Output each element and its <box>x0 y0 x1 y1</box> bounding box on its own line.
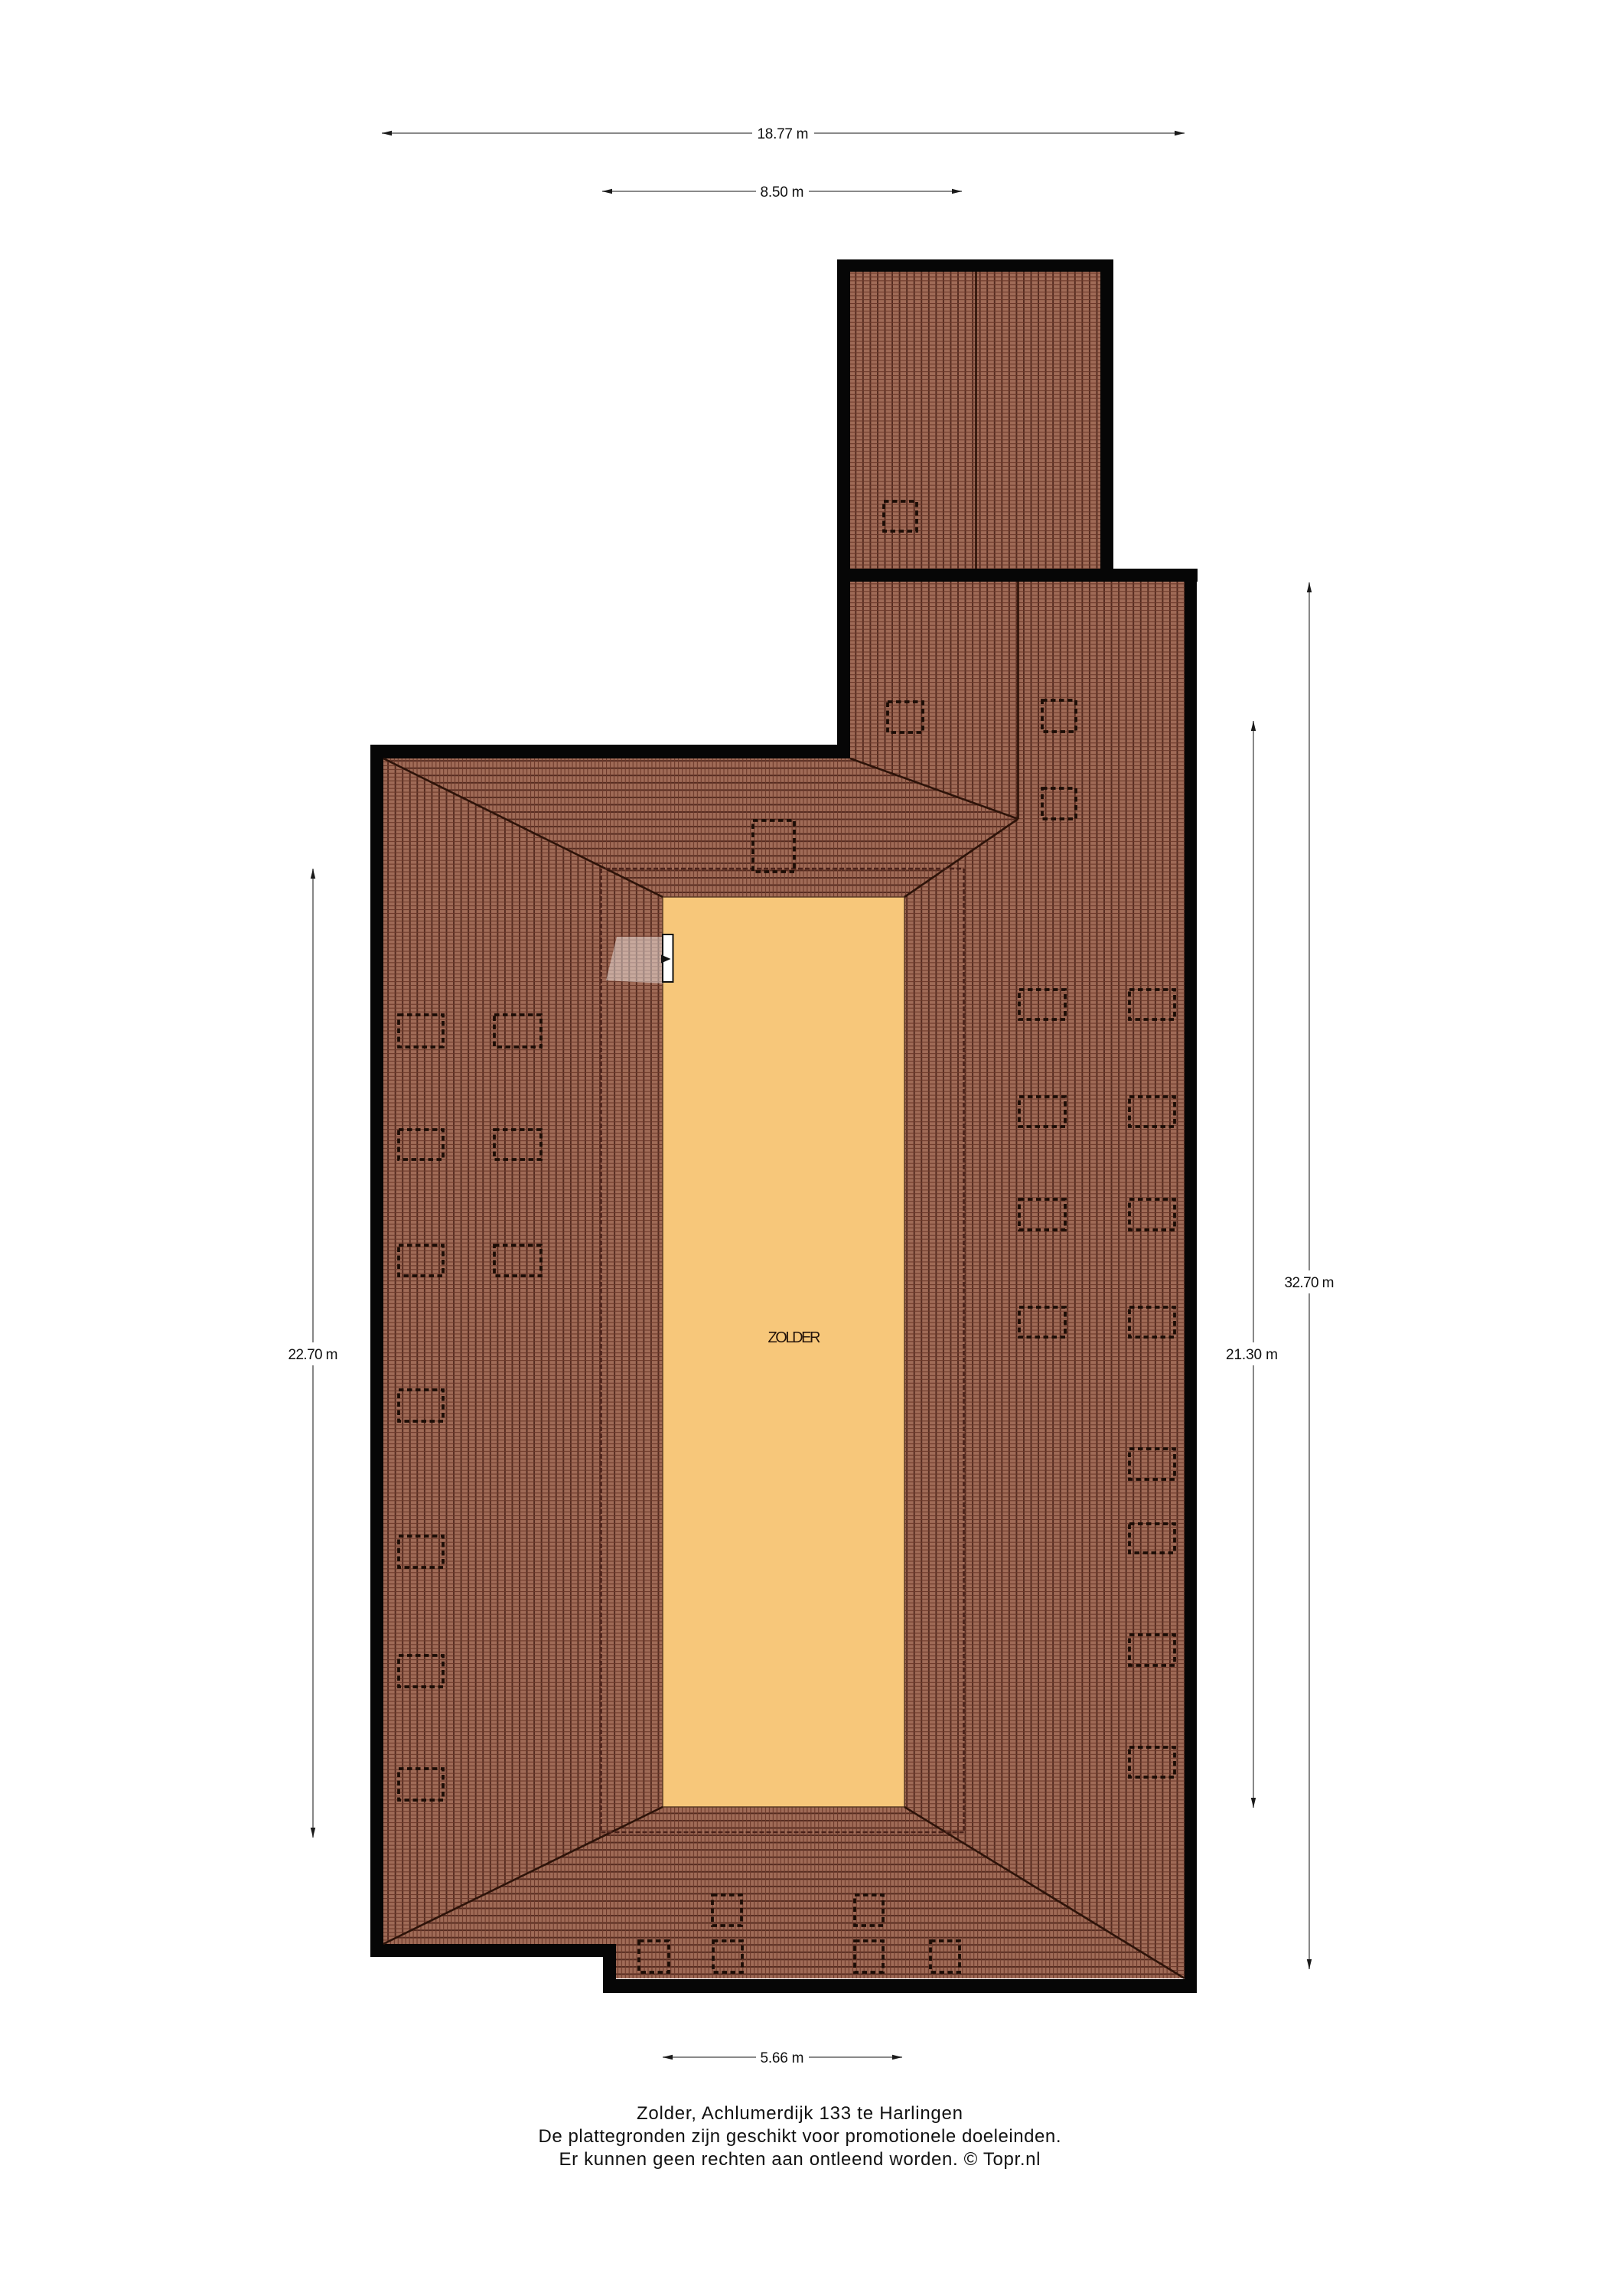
svg-text:5.66 m: 5.66 m <box>761 2050 804 2066</box>
svg-text:ZOLDER: ZOLDER <box>768 1329 821 1346</box>
svg-text:18.77 m: 18.77 m <box>758 126 809 142</box>
svg-text:De plattegronden zijn geschikt: De plattegronden zijn geschikt voor prom… <box>539 2126 1061 2147</box>
svg-text:32.70 m: 32.70 m <box>1285 1275 1335 1291</box>
svg-text:22.70 m: 22.70 m <box>288 1347 338 1363</box>
svg-text:8.50 m: 8.50 m <box>761 184 804 201</box>
svg-text:Zolder, Achlumerdijk 133 te Ha: Zolder, Achlumerdijk 133 te Harlingen <box>637 2103 963 2124</box>
svg-text:21.30 m: 21.30 m <box>1226 1347 1278 1363</box>
svg-text:Er kunnen geen rechten aan ont: Er kunnen geen rechten aan ontleend word… <box>559 2149 1041 2170</box>
